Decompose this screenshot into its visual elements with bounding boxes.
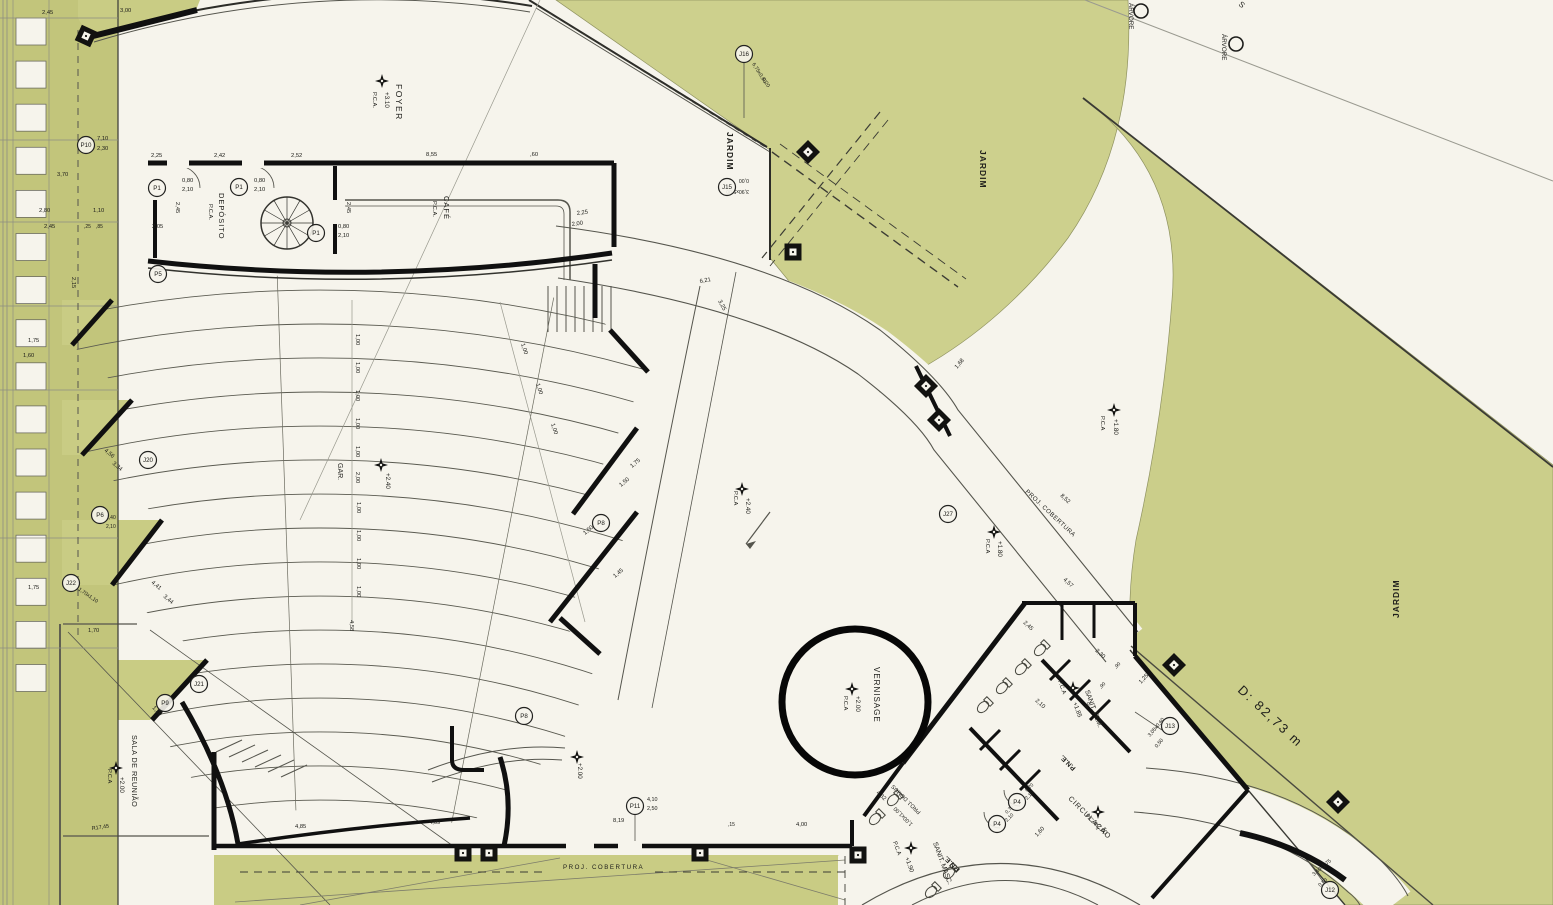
plan-text: VERNISAGE bbox=[872, 667, 881, 723]
plan-text: 1,75 bbox=[28, 338, 39, 344]
plan-text: 1,00 bbox=[355, 530, 361, 541]
tag-p6: P6 bbox=[92, 507, 109, 524]
level-marker-center bbox=[380, 464, 382, 466]
plan-text: P.C.A bbox=[1099, 416, 1105, 431]
level-marker-center bbox=[1113, 409, 1115, 411]
tag-p4: P4 bbox=[989, 816, 1006, 833]
tag-label: J22 bbox=[66, 580, 77, 587]
plan-text: 0,80 bbox=[254, 178, 265, 184]
plan-text: 2,80 bbox=[39, 208, 50, 214]
planter-square bbox=[16, 535, 46, 562]
plan-text: 2,45 bbox=[42, 10, 53, 16]
tag-label: P6 bbox=[96, 512, 104, 519]
plan-text: ,15 bbox=[728, 822, 735, 828]
plan-text: P.C.A bbox=[732, 491, 738, 506]
planter-square bbox=[16, 277, 46, 304]
plan-text: P.C.A. bbox=[207, 204, 213, 220]
plan-text: +2.40 bbox=[744, 498, 751, 514]
planter-square bbox=[16, 234, 46, 261]
planter-square bbox=[16, 406, 46, 433]
level-marker-center bbox=[381, 80, 383, 82]
tag-p11: P11 bbox=[627, 798, 644, 815]
column-dot bbox=[488, 852, 490, 854]
plan-text: 1,10 bbox=[93, 208, 104, 214]
level-marker-center bbox=[1097, 811, 1099, 813]
plan-text: P.C.A bbox=[842, 696, 848, 711]
level-marker-center bbox=[851, 688, 853, 690]
plan-text: JARDIM bbox=[725, 132, 735, 171]
level-marker-center bbox=[910, 847, 912, 849]
plan-text: 1,00 bbox=[355, 558, 361, 569]
plan-text: 4,10 bbox=[647, 797, 658, 803]
tag-j20: J20 bbox=[140, 452, 157, 469]
tag-p1: P1 bbox=[149, 180, 166, 197]
plan-text: PROJ. COBERTURA bbox=[563, 864, 644, 871]
plan-text: 7,10 bbox=[97, 136, 108, 142]
tag-p4: P4 bbox=[1009, 794, 1026, 811]
plan-text: 1,00 bbox=[354, 334, 360, 345]
plan-text: 1,00 bbox=[354, 418, 360, 429]
plan-text: 2,45 bbox=[345, 202, 351, 213]
tag-p9: P9 bbox=[157, 695, 174, 712]
tag-label: P4 bbox=[1013, 799, 1021, 806]
column-dot bbox=[857, 854, 859, 856]
plan-text: 1,00 bbox=[354, 390, 360, 401]
planter-square bbox=[16, 363, 46, 390]
planter-square bbox=[16, 449, 46, 476]
plan-text: 2,52 bbox=[291, 153, 302, 159]
tag-label: P11 bbox=[630, 803, 641, 810]
plan-text: JARDIM bbox=[978, 150, 988, 189]
plan-text: GAR. bbox=[336, 463, 343, 480]
plan-text: 2,42 bbox=[214, 153, 225, 159]
level-marker-center bbox=[993, 531, 995, 533]
planter-square bbox=[16, 18, 46, 45]
level-marker-center bbox=[115, 767, 117, 769]
tag-label: P8 bbox=[597, 520, 605, 527]
plan-text: 4,85 bbox=[295, 824, 306, 830]
column-marker bbox=[785, 244, 802, 261]
tag-label: P1 bbox=[153, 185, 161, 192]
plan-text: 2,10 bbox=[106, 524, 116, 530]
planter-square bbox=[16, 665, 46, 692]
plan-text: 1,00 bbox=[354, 446, 360, 457]
plan-text: 2,45 bbox=[44, 224, 55, 230]
tag-label: P5 bbox=[154, 271, 162, 278]
floor-plan-canvas: FOYER+3.10P.C.A.DEPÓSITOP.C.A.CAFÉP.C.A.… bbox=[0, 0, 1553, 905]
plan-text: 2,10 bbox=[338, 233, 349, 239]
column-dot bbox=[699, 852, 701, 854]
plan-text: 2,45 bbox=[174, 202, 180, 213]
plan-text: JARDIM bbox=[1391, 579, 1401, 618]
tag-j21: J21 bbox=[191, 676, 208, 693]
tag-j15: J15 bbox=[719, 179, 736, 196]
plan-text: +2.40 bbox=[384, 473, 391, 489]
tag-label: P4 bbox=[993, 821, 1001, 828]
tag-label: J16 bbox=[739, 51, 750, 58]
plan-text: SALA DE REUNIÃO bbox=[130, 735, 139, 807]
planter-square bbox=[16, 104, 46, 131]
tag-label: P9 bbox=[161, 700, 169, 707]
plan-text: 1,60 bbox=[23, 353, 34, 359]
tag-label: J20 bbox=[143, 457, 154, 464]
plan-text: +1.80 bbox=[996, 541, 1003, 557]
plan-text: 1,00 bbox=[354, 362, 360, 373]
tag-label: J21 bbox=[194, 681, 205, 688]
plan-text: 1,75 bbox=[28, 585, 39, 591]
plan-text: ,85 bbox=[96, 224, 103, 230]
plan-text: 2,15 bbox=[70, 277, 76, 288]
plan-text: 0,00 bbox=[739, 177, 749, 183]
plan-text: 2,50 bbox=[647, 806, 658, 812]
tag-label: P8 bbox=[520, 713, 528, 720]
plan-text: ,25 bbox=[84, 224, 91, 230]
scanned-floor-plan: FOYER+3.10P.C.A.DEPÓSITOP.C.A.CAFÉP.C.A.… bbox=[0, 0, 1553, 905]
plan-text: 2,10 bbox=[182, 187, 193, 193]
planter-square bbox=[16, 621, 46, 648]
plan-text: ÁRVORE bbox=[1220, 34, 1229, 60]
tag-label: P10 bbox=[80, 142, 92, 149]
plan-text: P.C.A bbox=[984, 539, 990, 554]
plan-text: 1,70 bbox=[88, 628, 99, 634]
planter-square bbox=[16, 578, 46, 605]
planter-square bbox=[16, 492, 46, 519]
plan-text: 1,00 bbox=[355, 502, 361, 513]
plan-text: 4,09 bbox=[429, 820, 440, 826]
plan-text: FOYER bbox=[394, 84, 404, 121]
plan-text: P.C.A bbox=[106, 769, 112, 784]
plan-text: +2.00 bbox=[854, 696, 861, 712]
column-marker bbox=[455, 845, 472, 862]
plan-text: P.C.A. bbox=[431, 201, 437, 217]
plan-text: +1.80 bbox=[1112, 419, 1119, 435]
plan-text: +2.00 bbox=[118, 777, 125, 793]
plan-text: 3,70 bbox=[57, 172, 68, 178]
plan-text: 1,00 bbox=[355, 586, 361, 597]
level-marker-center bbox=[1072, 687, 1074, 689]
plan-text: 2,00 bbox=[354, 472, 360, 483]
tag-label: J27 bbox=[943, 511, 954, 518]
tag-label: P1 bbox=[235, 184, 243, 191]
tag-p5: P5 bbox=[150, 266, 167, 283]
column-marker bbox=[481, 845, 498, 862]
planter-square bbox=[16, 147, 46, 174]
column-dot bbox=[462, 852, 464, 854]
plan-text: 2,30 bbox=[97, 146, 108, 152]
plan-text: CAFÉ bbox=[442, 196, 451, 220]
column-marker bbox=[692, 845, 709, 862]
plan-text: DEPÓSITO bbox=[217, 193, 226, 240]
plan-text: 2,05 bbox=[152, 224, 163, 230]
tag-p8: P8 bbox=[593, 515, 610, 532]
planter-square bbox=[16, 61, 46, 88]
tag-j13: J13 bbox=[1162, 718, 1179, 735]
tag-label: P1 bbox=[312, 230, 320, 237]
tag-label: J15 bbox=[722, 184, 733, 191]
plan-text: 3,00 bbox=[120, 8, 131, 14]
tag-j12: J12 bbox=[1322, 882, 1339, 899]
tag-p1: P1 bbox=[308, 225, 325, 242]
plan-text: +3.10 bbox=[383, 92, 390, 108]
tag-p1: P1 bbox=[231, 179, 248, 196]
tag-j22: J22 bbox=[63, 575, 80, 592]
level-marker-center bbox=[741, 488, 743, 490]
tag-label: J13 bbox=[1165, 723, 1176, 730]
tag-p8: P8 bbox=[516, 708, 533, 725]
spiral-stair bbox=[261, 197, 313, 249]
tag-j27: J27 bbox=[940, 506, 957, 523]
plan-text: 4,00 bbox=[796, 822, 807, 828]
tag-j16: J16 bbox=[736, 46, 753, 63]
plan-text: 0,80 bbox=[338, 224, 349, 230]
tag-p10: P10 bbox=[78, 137, 95, 154]
plan-text: 2,10 bbox=[254, 187, 265, 193]
column-dot bbox=[792, 251, 794, 253]
plan-text: P.C.A. bbox=[371, 92, 377, 108]
plan-text: 0,80 bbox=[182, 178, 193, 184]
level-marker-center bbox=[576, 756, 578, 758]
plan-text: 8,19 bbox=[613, 818, 624, 824]
tag-label: J12 bbox=[1325, 887, 1336, 894]
plan-text: 4,58 bbox=[348, 620, 354, 631]
plan-text: +2.00 bbox=[576, 763, 583, 779]
column-marker bbox=[850, 847, 867, 864]
plan-text: 8,55 bbox=[426, 152, 437, 158]
plan-text: 2,25 bbox=[151, 153, 162, 159]
plan-text: ,60 bbox=[530, 152, 538, 158]
